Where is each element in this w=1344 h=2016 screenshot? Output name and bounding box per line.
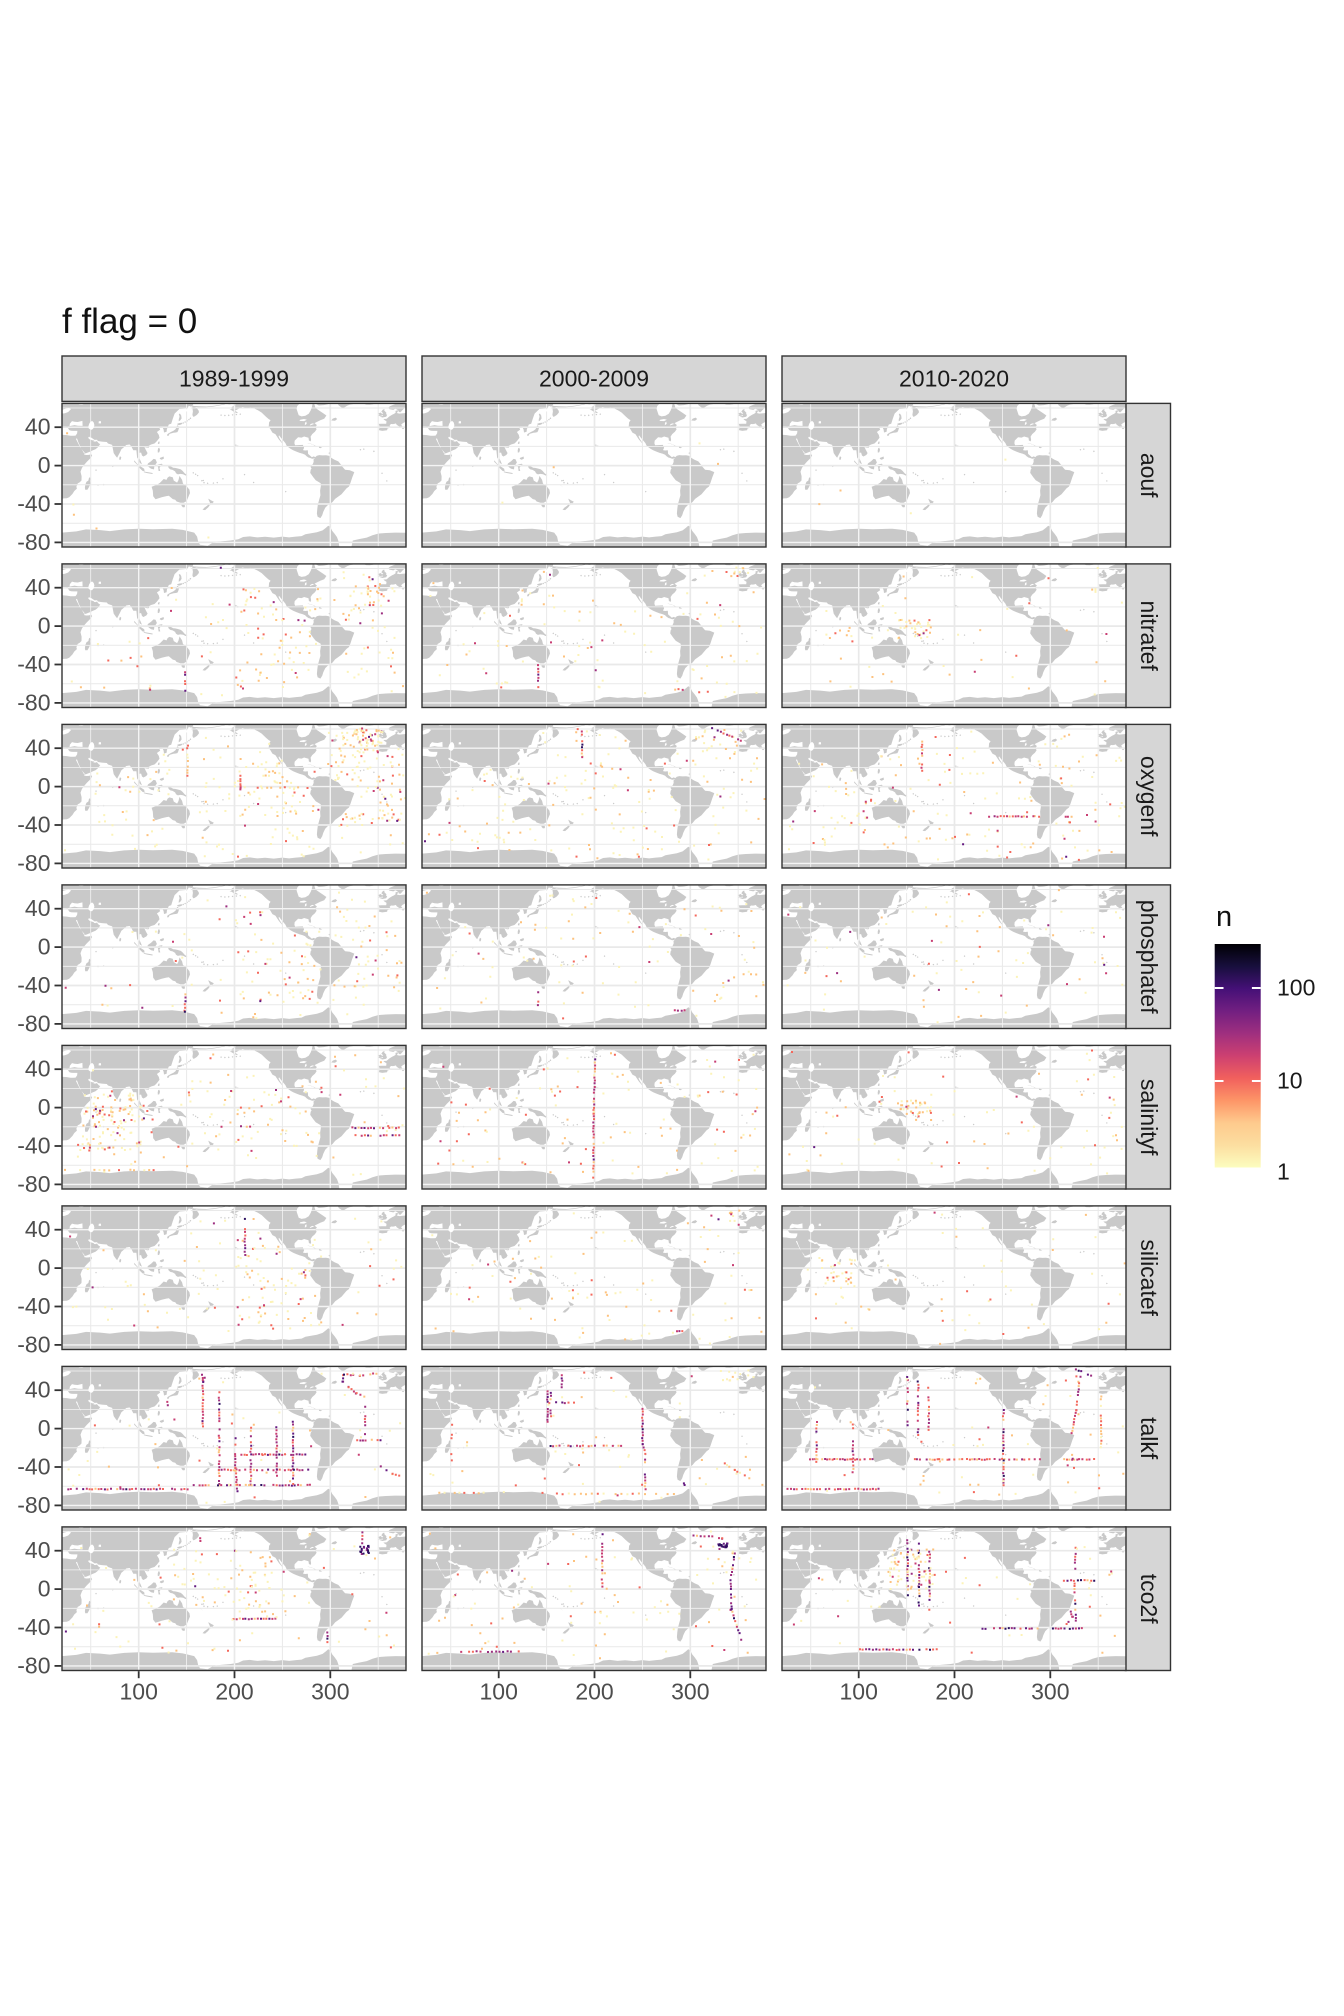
svg-text:1989-1999: 1989-1999 [179, 366, 289, 392]
svg-text:300: 300 [1031, 1679, 1069, 1705]
svg-text:0: 0 [38, 1576, 51, 1602]
svg-text:-80: -80 [17, 1171, 50, 1197]
svg-text:100: 100 [480, 1679, 518, 1705]
svg-text:-40: -40 [17, 1454, 50, 1480]
svg-text:n: n [1216, 901, 1232, 933]
svg-text:10: 10 [1277, 1068, 1303, 1094]
svg-text:0: 0 [38, 1415, 51, 1441]
svg-text:40: 40 [25, 1537, 51, 1563]
svg-text:0: 0 [38, 934, 51, 960]
svg-text:-80: -80 [17, 1331, 50, 1357]
svg-text:f flag = 0: f flag = 0 [62, 302, 197, 341]
svg-text:40: 40 [25, 1056, 51, 1082]
svg-text:300: 300 [671, 1679, 709, 1705]
svg-text:-40: -40 [17, 812, 50, 838]
svg-text:100: 100 [120, 1679, 158, 1705]
svg-text:0: 0 [38, 613, 51, 639]
svg-text:tco2f: tco2f [1136, 1574, 1162, 1624]
svg-text:200: 200 [215, 1679, 253, 1705]
svg-text:0: 0 [38, 452, 51, 478]
svg-text:oxygenf: oxygenf [1136, 756, 1162, 837]
svg-text:1: 1 [1277, 1159, 1290, 1185]
svg-text:40: 40 [25, 574, 51, 600]
svg-text:200: 200 [935, 1679, 973, 1705]
svg-text:aouf: aouf [1136, 453, 1162, 498]
svg-text:nitratef: nitratef [1136, 601, 1162, 672]
svg-text:300: 300 [311, 1679, 349, 1705]
svg-text:40: 40 [25, 414, 51, 440]
svg-text:100: 100 [840, 1679, 878, 1705]
svg-text:0: 0 [38, 773, 51, 799]
svg-text:40: 40 [25, 895, 51, 921]
svg-text:-40: -40 [17, 972, 50, 998]
svg-text:2000-2009: 2000-2009 [539, 366, 649, 392]
svg-text:phosphatef: phosphatef [1136, 900, 1162, 1014]
svg-text:-80: -80 [17, 529, 50, 555]
svg-text:100: 100 [1277, 975, 1315, 1001]
svg-text:-40: -40 [17, 1293, 50, 1319]
svg-text:200: 200 [575, 1679, 613, 1705]
svg-text:0: 0 [38, 1255, 51, 1281]
svg-text:-80: -80 [17, 1010, 50, 1036]
svg-text:-80: -80 [17, 689, 50, 715]
svg-text:2010-2020: 2010-2020 [899, 366, 1009, 392]
svg-text:salinityf: salinityf [1136, 1079, 1162, 1156]
svg-text:40: 40 [25, 1377, 51, 1403]
svg-text:-40: -40 [17, 1133, 50, 1159]
svg-text:-40: -40 [17, 491, 50, 517]
svg-text:-80: -80 [17, 850, 50, 876]
svg-text:-40: -40 [17, 651, 50, 677]
svg-text:40: 40 [25, 1216, 51, 1242]
svg-text:-80: -80 [17, 1492, 50, 1518]
svg-text:-80: -80 [17, 1652, 50, 1678]
svg-text:silicatef: silicatef [1136, 1239, 1162, 1316]
svg-text:-40: -40 [17, 1614, 50, 1640]
svg-text:talkf: talkf [1136, 1417, 1162, 1460]
svg-text:0: 0 [38, 1094, 51, 1120]
svg-text:40: 40 [25, 735, 51, 761]
